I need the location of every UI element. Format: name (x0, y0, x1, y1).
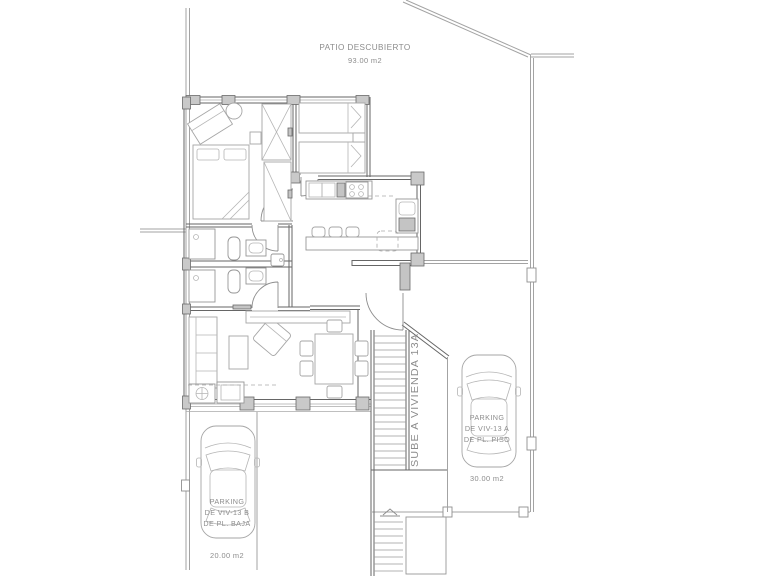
parking-right-area: 30.00 m2 (470, 474, 504, 483)
bedroom-1-furniture (188, 103, 292, 221)
understair-storage (406, 517, 446, 574)
dining-chair (300, 361, 313, 376)
patio-area: 93.00 m2 (348, 56, 382, 65)
dining-chair (355, 341, 368, 356)
floor-plan-canvas: PATIO DESCUBIERTO 93.00 m2 SUBE A VIVIEN… (0, 0, 768, 576)
stool (329, 227, 342, 237)
dining-table (315, 334, 353, 384)
toilet (228, 237, 240, 260)
nightstand (250, 132, 261, 144)
toilet (228, 270, 240, 293)
staircase (371, 330, 447, 576)
kitchen-furniture (306, 181, 418, 251)
boundary-post (182, 480, 190, 491)
parking-left-area: 20.00 m2 (210, 551, 244, 560)
parking-right-line3: DE PL. PISO (464, 435, 510, 444)
nightstand (353, 133, 365, 142)
bathroom-fixtures (189, 229, 284, 302)
sofa (189, 317, 217, 388)
door-arc-bath-bottom (252, 282, 278, 308)
stool (346, 227, 359, 237)
boundary-post (519, 507, 528, 517)
single-bed (299, 103, 365, 133)
shower (189, 229, 215, 259)
bedroom-2-furniture (299, 103, 365, 173)
parking-right-line2: DE VIV-13 A (465, 424, 509, 433)
door-arc-entry (366, 293, 403, 330)
parking-left-line1: PARKING (210, 497, 245, 506)
appliance (399, 218, 415, 231)
dining-chair (355, 361, 368, 376)
dining-chair (327, 320, 342, 332)
stool (312, 227, 325, 237)
boundary-post (527, 268, 536, 282)
car-parking-right (458, 355, 521, 467)
washing-machine (189, 384, 215, 403)
dining-chair (300, 341, 313, 356)
water-heater (271, 254, 284, 266)
floor-plan-drawing: PATIO DESCUBIERTO 93.00 m2 SUBE A VIVIEN… (0, 0, 768, 576)
stair-note: SUBE A VIVIENDA 13A (410, 333, 421, 467)
parking-left-line3: DE PL. BAJA (203, 519, 250, 528)
desk-chair (226, 103, 242, 119)
dining-chair (327, 386, 342, 398)
patio-title: PATIO DESCUBIERTO (319, 43, 410, 52)
single-bed (299, 142, 365, 173)
stove (346, 182, 368, 198)
shower (189, 270, 215, 302)
breakfast-bar (306, 237, 418, 250)
boundary-post (527, 437, 536, 450)
parking-left-line2: DE VIV-13 B (205, 508, 250, 517)
parking-right-line1: PARKING (470, 413, 505, 422)
coffee-table (229, 336, 248, 369)
